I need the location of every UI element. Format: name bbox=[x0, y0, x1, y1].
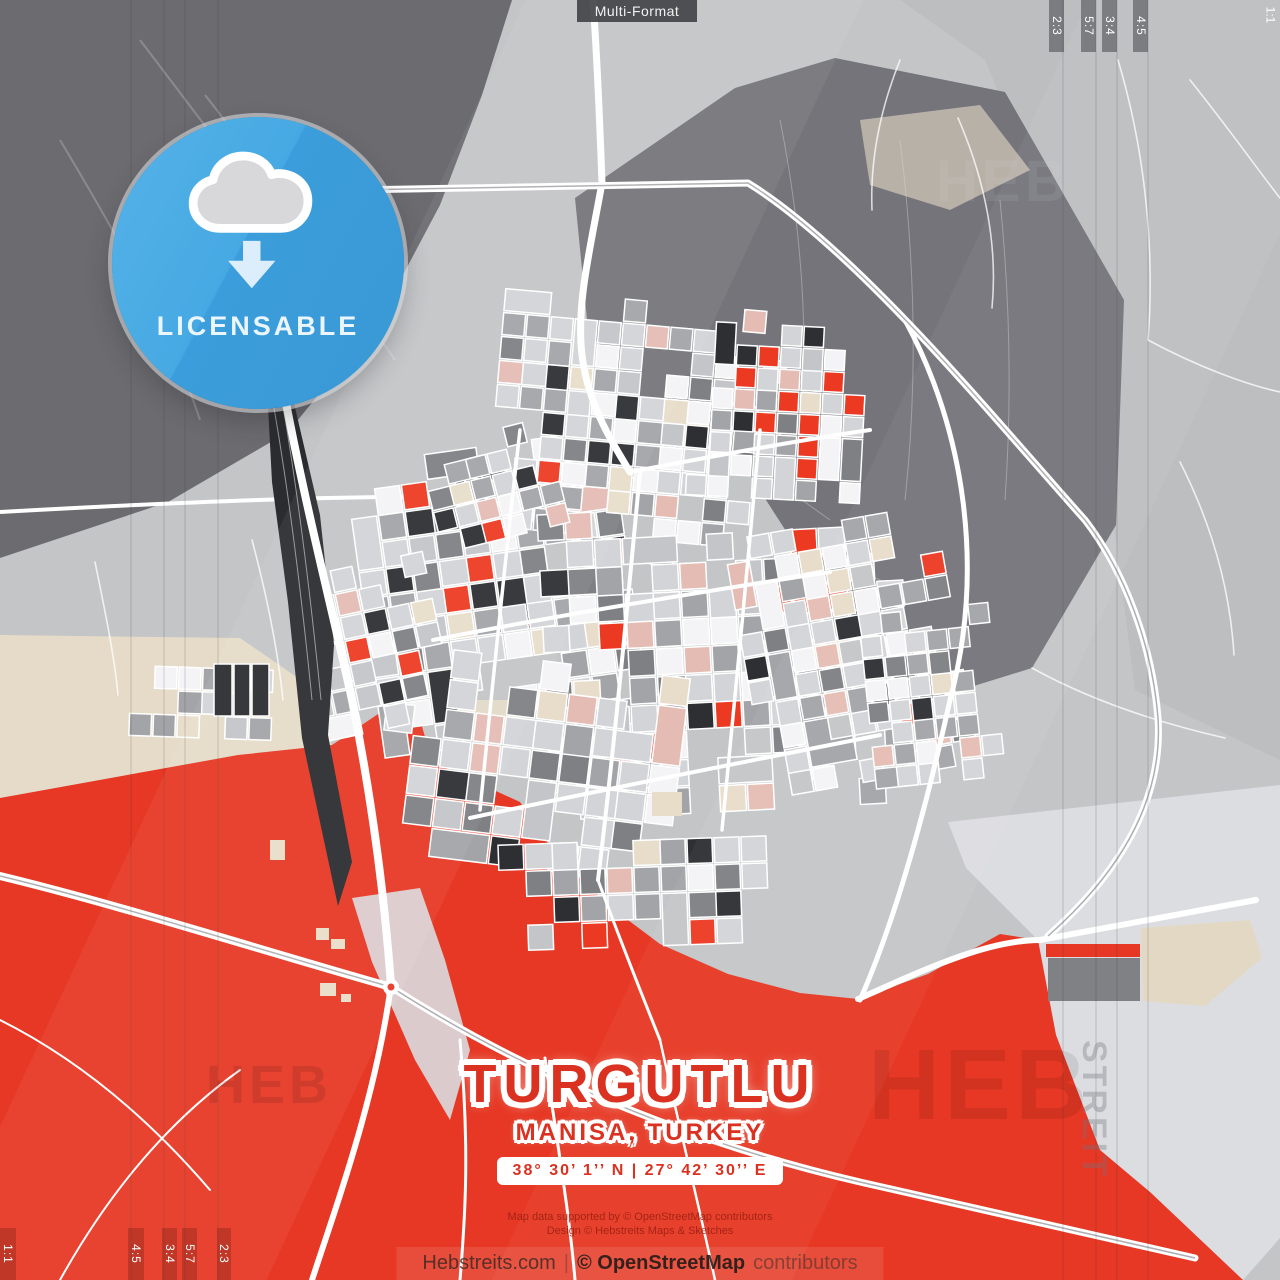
attribution-bar: Hebstreits.com | © OpenStreetMap contrib… bbox=[396, 1247, 883, 1280]
site-link[interactable]: Hebstreits.com bbox=[422, 1252, 555, 1275]
ratio-marker-1-1: 1:1 bbox=[1263, 7, 1277, 24]
separator: | bbox=[564, 1252, 569, 1275]
credits-line-2: Design © Hebstreits Maps & Sketches bbox=[0, 1224, 1280, 1238]
ratio-marker-4-5: 4:5 bbox=[1133, 0, 1148, 52]
ratio-marker-5-7: 5:7 bbox=[1081, 0, 1096, 52]
download-arrow-icon bbox=[228, 241, 275, 288]
coordinates-label: 38° 30’ 1’’ N | 27° 42’ 30’’ E bbox=[497, 1157, 784, 1185]
cloud-download-icon bbox=[183, 151, 333, 297]
badge-label: LICENSABLE bbox=[157, 311, 360, 342]
city-title: TURGUTLU bbox=[0, 1056, 1280, 1113]
map-credits: Map data supported by © OpenStreetMap co… bbox=[0, 1210, 1280, 1238]
ratio-marker-2-3: 2:3 bbox=[1049, 0, 1064, 52]
map-poster-image[interactable]: HEB HEB HEB STREIT Multi-Format 2:3 5:7 … bbox=[0, 0, 1280, 1280]
credits-line-1: Map data supported by © OpenStreetMap co… bbox=[0, 1210, 1280, 1224]
ratio-marker-3-4: 3:4 bbox=[1102, 0, 1117, 52]
licensable-badge: LICENSABLE bbox=[112, 117, 404, 409]
title-block: TURGUTLU MANISA, TURKEY 38° 30’ 1’’ N | … bbox=[0, 1056, 1280, 1185]
osm-link[interactable]: © OpenStreetMap bbox=[577, 1252, 745, 1275]
format-label: Multi-Format bbox=[577, 0, 697, 22]
region-subtitle: MANISA, TURKEY bbox=[0, 1119, 1280, 1147]
contributors-label: contributors bbox=[753, 1252, 858, 1275]
